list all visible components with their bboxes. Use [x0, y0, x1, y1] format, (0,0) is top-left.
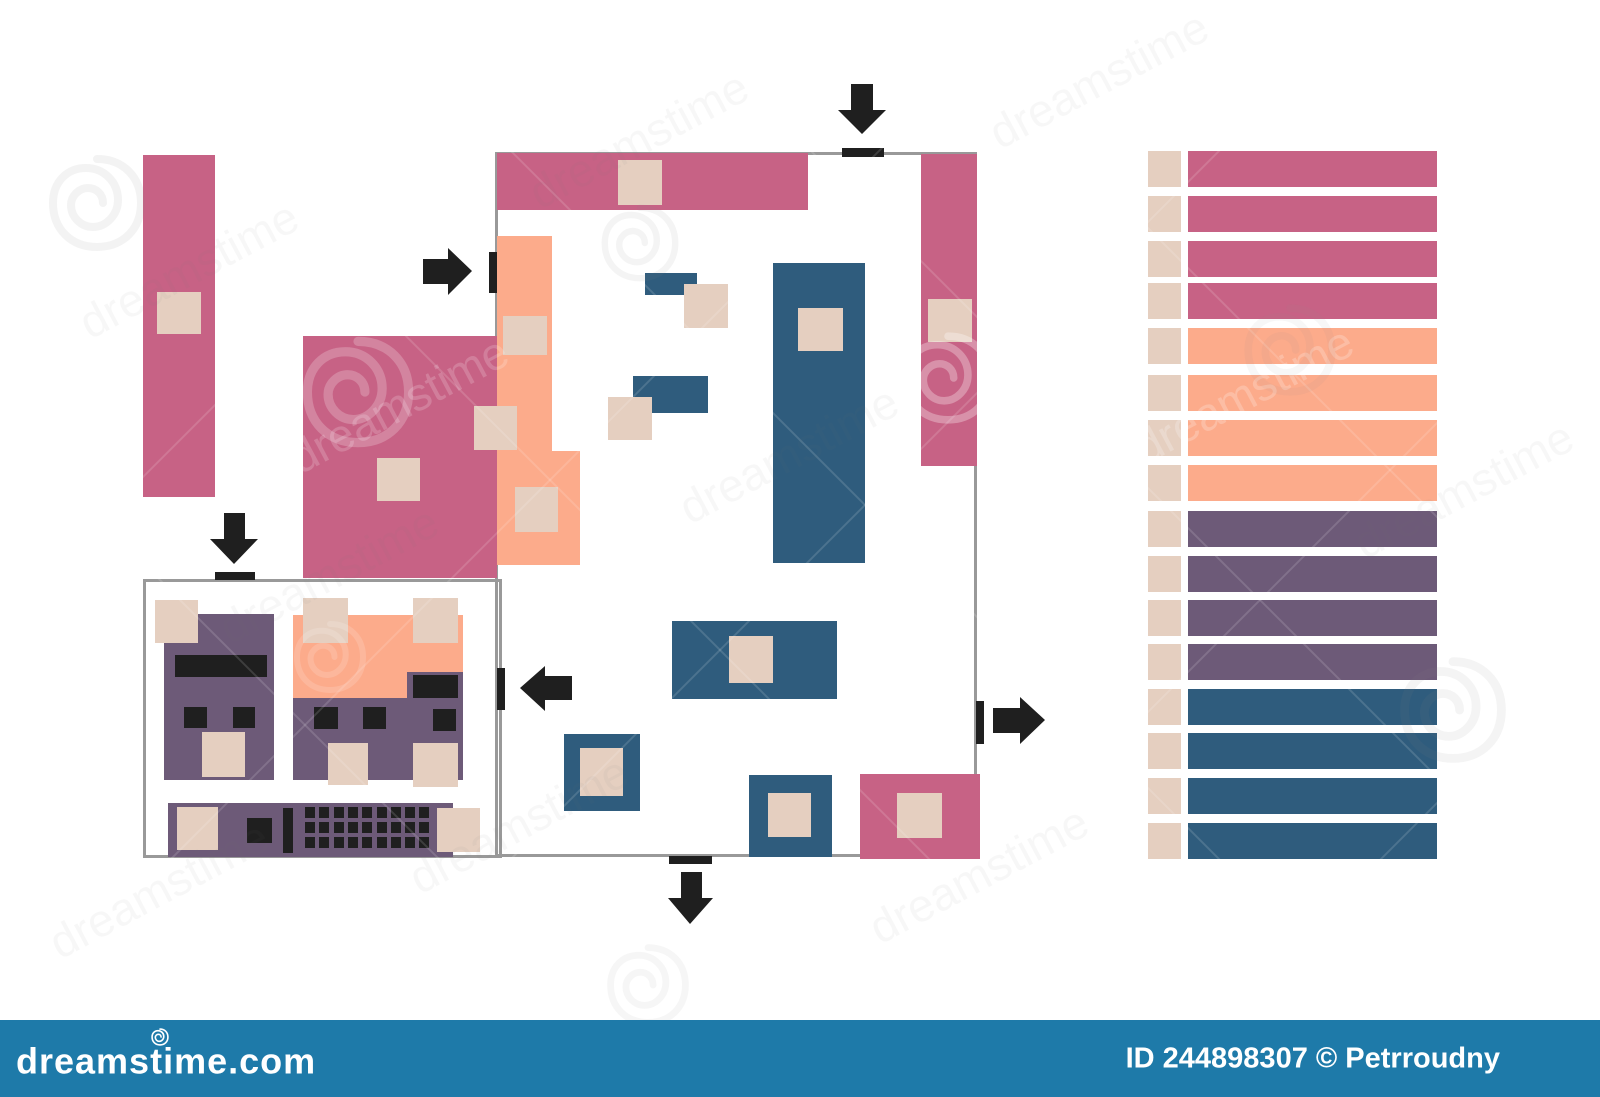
legend-bar-pink: [1188, 241, 1437, 277]
keyboard-key: [319, 837, 329, 848]
keyboard-key: [391, 822, 401, 833]
keyboard-key: [362, 837, 372, 848]
keyboard-key: [305, 807, 315, 818]
legend-swatch-square: [1148, 375, 1181, 411]
checkout-key: [247, 818, 272, 843]
keyboard-key: [319, 807, 329, 818]
legend-swatch-square: [1148, 823, 1181, 859]
legend-swatch-square: [1148, 511, 1181, 547]
pallet-marker: [515, 487, 558, 532]
legend-swatch-square: [1148, 644, 1181, 680]
legend-swatch-square: [1148, 733, 1181, 769]
keyboard-key: [334, 822, 344, 833]
image-credit: ID 244898307 © Petrroudny: [1126, 1042, 1500, 1075]
keyboard-key: [405, 807, 415, 818]
legend-bar-pink: [1188, 151, 1437, 187]
watermark-spiral-icon: [53, 159, 141, 247]
legend-bar-blue: [1188, 778, 1437, 814]
arrow-entrance-checkout: [210, 513, 258, 564]
pallet-marker: [580, 748, 623, 796]
door-top: [842, 148, 884, 157]
checkout-key: [314, 707, 338, 729]
legend-swatch-square: [1148, 241, 1181, 277]
keyboard-key: [419, 837, 429, 848]
arrow-exit-left: [520, 666, 572, 711]
checkout-key: [363, 707, 386, 729]
legend-bar-peach: [1188, 328, 1437, 364]
door-left-upper: [489, 252, 497, 293]
keyboard-key: [419, 807, 429, 818]
checkout-display-bar: [413, 675, 458, 698]
keyboard-key: [377, 837, 387, 848]
pallet-marker: [328, 743, 368, 785]
legend-bar-blue: [1188, 689, 1437, 725]
legend-bar-purple: [1188, 600, 1437, 636]
legend-swatch-square: [1148, 283, 1181, 319]
checkout-divider-bar: [283, 808, 293, 853]
pallet-marker: [503, 316, 547, 355]
pallet-marker: [684, 284, 728, 328]
legend-swatch-square: [1148, 465, 1181, 501]
pallet-marker: [155, 600, 198, 643]
keyboard-key: [319, 822, 329, 833]
keyboard-key: [377, 807, 387, 818]
legend-bar-pink: [1188, 196, 1437, 232]
pallet-marker: [377, 458, 420, 501]
pallet-marker: [729, 636, 773, 683]
arrow-exit-right: [993, 697, 1045, 744]
keyboard-key: [348, 837, 358, 848]
keyboard-key: [377, 822, 387, 833]
legend-bar-purple: [1188, 511, 1437, 547]
legend-bar-peach: [1188, 375, 1437, 411]
legend-bar-purple: [1188, 556, 1437, 592]
legend-swatch-square: [1148, 689, 1181, 725]
legend-bar-peach: [1188, 465, 1437, 501]
floor-plan-canvas: dreamstimedreamstimedreamstimedreamstime…: [0, 0, 1600, 1097]
pallet-marker: [474, 406, 517, 450]
legend-swatch-square: [1148, 778, 1181, 814]
pallet-marker: [413, 743, 458, 787]
checkout-key: [184, 707, 207, 728]
dreamstime-logo: dreamstime.com: [16, 1040, 316, 1082]
pallet-marker: [413, 598, 458, 643]
dept-pink-square: [303, 336, 497, 578]
legend-swatch-square: [1148, 556, 1181, 592]
arrow-exit-bottom: [668, 872, 713, 924]
legend-swatch-square: [1148, 420, 1181, 456]
legend-bar-blue: [1188, 823, 1437, 859]
watermark-spiral-icon: [605, 208, 675, 278]
pallet-marker: [157, 292, 201, 334]
pallet-marker: [897, 793, 942, 838]
checkout-key: [233, 707, 255, 728]
keyboard-key: [348, 807, 358, 818]
pallet-marker: [618, 160, 662, 205]
checkout-key: [433, 709, 456, 731]
legend-swatch-square: [1148, 151, 1181, 187]
legend-bar-purple: [1188, 644, 1437, 680]
keyboard-key: [419, 822, 429, 833]
legend-bar-blue: [1188, 733, 1437, 769]
pallet-marker: [177, 807, 218, 850]
door-right: [976, 701, 984, 744]
legend-bar-peach: [1188, 420, 1437, 456]
door-bottom: [669, 856, 712, 864]
keyboard-key: [334, 807, 344, 818]
keyboard-key: [362, 807, 372, 818]
door-left-lower: [497, 668, 505, 710]
legend-bar-pink: [1188, 283, 1437, 319]
footer-bar: dreamstime.com ID 244898307 © Petrroudny: [0, 1020, 1600, 1097]
keyboard-key: [305, 837, 315, 848]
keyboard-key: [405, 822, 415, 833]
checkout-display-bar: [175, 655, 267, 677]
keyboard-key: [348, 822, 358, 833]
keyboard-key: [391, 837, 401, 848]
keyboard-key: [334, 837, 344, 848]
watermark-text: dreamstime: [980, 0, 1217, 159]
pallet-marker: [437, 808, 480, 852]
watermark-spiral-icon: [611, 948, 686, 1023]
pallet-marker: [608, 397, 652, 440]
keyboard-key: [305, 822, 315, 833]
logo-spiral-icon: [150, 1028, 170, 1046]
pallet-marker: [928, 299, 972, 342]
legend-swatch-square: [1148, 328, 1181, 364]
keyboard-key: [391, 807, 401, 818]
pallet-marker: [202, 732, 245, 777]
pallet-marker: [768, 793, 811, 837]
arrow-entrance-left: [423, 248, 472, 295]
legend-swatch-square: [1148, 196, 1181, 232]
pallet-marker: [798, 308, 843, 351]
legend-swatch-square: [1148, 600, 1181, 636]
keyboard-key: [405, 837, 415, 848]
arrow-entrance-top: [838, 84, 886, 134]
pallet-marker: [303, 598, 348, 643]
door-checkout-top: [215, 572, 255, 580]
keyboard-key: [362, 822, 372, 833]
